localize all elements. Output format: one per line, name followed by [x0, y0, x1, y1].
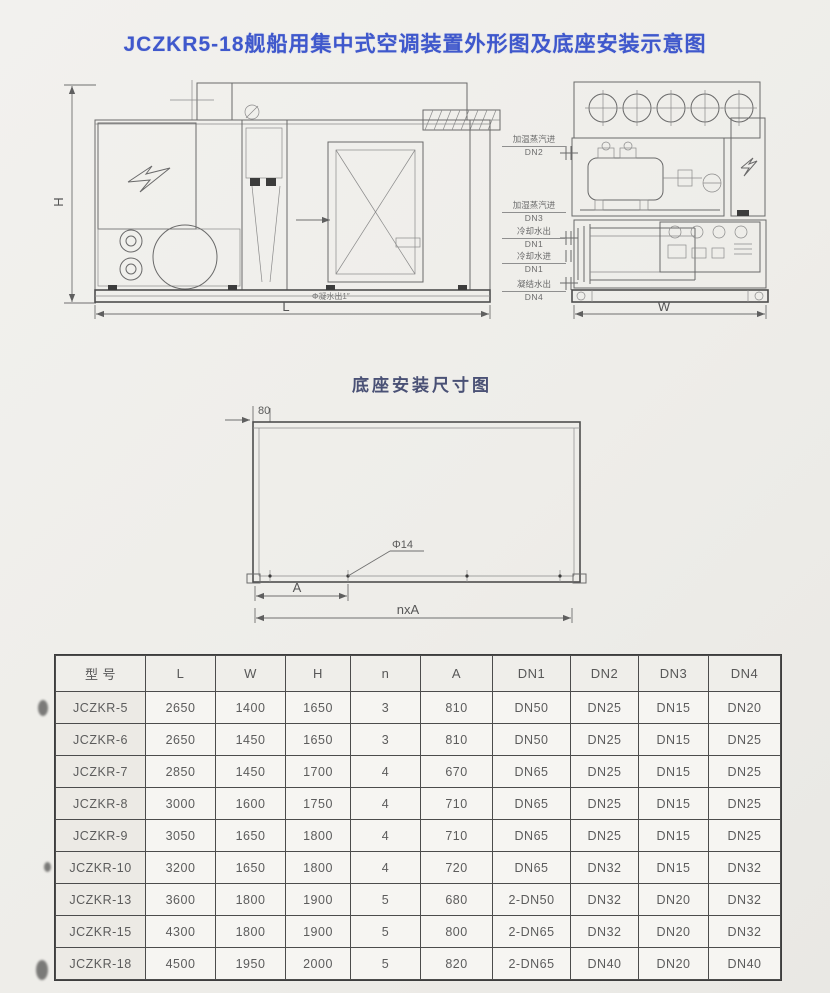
table-row: JCZKR-52650140016503810DN50DN25DN15DN20 — [56, 692, 781, 724]
port-label: 冷却水出DN1 — [502, 226, 566, 250]
table-cell: JCZKR-6 — [56, 724, 146, 756]
dim-w-label: W — [658, 299, 671, 314]
end-view-drawing: W — [560, 82, 768, 319]
side-view-drawing: H — [51, 80, 500, 319]
table-cell: DN15 — [639, 724, 709, 756]
table-cell: 1650 — [286, 724, 351, 756]
dim-l-label: L — [282, 299, 289, 314]
table-cell: DN65 — [493, 820, 571, 852]
table-cell: DN65 — [493, 852, 571, 884]
table-cell: DN65 — [493, 756, 571, 788]
table-cell: DN32 — [571, 852, 639, 884]
table-cell: 670 — [421, 756, 493, 788]
table-cell: DN20 — [639, 916, 709, 948]
table-cell: 4 — [351, 820, 421, 852]
table-cell: 720 — [421, 852, 493, 884]
table-cell: DN50 — [493, 692, 571, 724]
edge-offset-label: 80 — [258, 405, 270, 417]
table-cell: 810 — [421, 724, 493, 756]
table-header-cell: DN1 — [493, 656, 571, 692]
table-header-cell: DN3 — [639, 656, 709, 692]
table-cell: DN32 — [571, 916, 639, 948]
table-cell: 4300 — [146, 916, 216, 948]
table-cell: 1800 — [286, 852, 351, 884]
table-row: JCZKR-1845001950200058202-DN65DN40DN20DN… — [56, 948, 781, 980]
table-cell: DN15 — [639, 756, 709, 788]
hole-label: Φ14 — [392, 539, 413, 551]
table-cell: 1800 — [216, 884, 286, 916]
dim-a-label: A — [293, 580, 302, 595]
table-cell: 1700 — [286, 756, 351, 788]
table-cell: DN40 — [571, 948, 639, 980]
table-cell: JCZKR-10 — [56, 852, 146, 884]
table-cell: DN32 — [709, 852, 781, 884]
port-dn: DN1 — [502, 239, 566, 250]
table-cell: DN15 — [639, 852, 709, 884]
port-dn: DN4 — [502, 292, 566, 303]
table-cell: 710 — [421, 820, 493, 852]
table-cell: DN15 — [639, 788, 709, 820]
drain-label: Φ凝水出1″ — [312, 291, 350, 301]
spec-table: 型 号LWHnADN1DN2DN3DN4 JCZKR-5265014001650… — [55, 655, 781, 980]
spec-table-header-row: 型 号LWHnADN1DN2DN3DN4 — [56, 656, 781, 692]
port-name: 冷却水出 — [502, 226, 566, 239]
table-row: JCZKR-72850145017004670DN65DN25DN15DN25 — [56, 756, 781, 788]
table-cell: DN25 — [571, 820, 639, 852]
table-header-cell: DN4 — [709, 656, 781, 692]
scanned-page: JCZKR5-18舰船用集中式空调装置外形图及底座安装示意图 H — [0, 0, 830, 993]
table-row: JCZKR-83000160017504710DN65DN25DN15DN25 — [56, 788, 781, 820]
table-header-cell: L — [146, 656, 216, 692]
table-cell: 1800 — [216, 916, 286, 948]
table-cell: 3 — [351, 692, 421, 724]
table-row: JCZKR-103200165018004720DN65DN32DN15DN32 — [56, 852, 781, 884]
table-cell: DN25 — [709, 788, 781, 820]
table-cell: 5 — [351, 916, 421, 948]
port-dn: DN2 — [502, 147, 566, 158]
table-cell: 2650 — [146, 724, 216, 756]
base-plate: Φ14 — [247, 422, 586, 583]
port-dn: DN3 — [502, 213, 566, 224]
spec-table-body: JCZKR-52650140016503810DN50DN25DN15DN20J… — [56, 692, 781, 980]
outline-drawing: H — [0, 70, 830, 340]
table-row: JCZKR-1336001800190056802-DN50DN32DN20DN… — [56, 884, 781, 916]
dim-nxa: nxA — [255, 602, 572, 623]
table-cell: 710 — [421, 788, 493, 820]
port-dn: DN1 — [502, 264, 566, 275]
table-cell: 2850 — [146, 756, 216, 788]
table-cell: 3000 — [146, 788, 216, 820]
port-label: 凝结水出DN4 — [502, 279, 566, 303]
table-cell: JCZKR-5 — [56, 692, 146, 724]
dim-edge-offset: 80 — [225, 405, 270, 424]
table-cell: 5 — [351, 948, 421, 980]
table-cell: DN20 — [709, 692, 781, 724]
table-cell: DN50 — [493, 724, 571, 756]
table-cell: 2-DN65 — [493, 916, 571, 948]
table-cell: 1450 — [216, 724, 286, 756]
port-name: 加湿蒸汽进 — [502, 200, 566, 213]
table-cell: DN25 — [709, 724, 781, 756]
table-cell: 1750 — [286, 788, 351, 820]
table-cell: DN32 — [709, 884, 781, 916]
table-cell: DN20 — [639, 948, 709, 980]
table-cell: 2000 — [286, 948, 351, 980]
port-label: 冷却水进DN1 — [502, 251, 566, 275]
table-cell: 1400 — [216, 692, 286, 724]
port-name: 冷却水进 — [502, 251, 566, 264]
base-diagram-caption: 底座安装尺寸图 — [352, 371, 492, 396]
scan-artifact — [38, 700, 48, 716]
table-cell: 5 — [351, 884, 421, 916]
port-label: 加温蒸汽进DN2 — [502, 134, 566, 158]
table-cell: 3 — [351, 724, 421, 756]
table-cell: DN65 — [493, 788, 571, 820]
table-cell: 810 — [421, 692, 493, 724]
table-cell: 1950 — [216, 948, 286, 980]
dim-a: A — [255, 580, 348, 601]
table-header-cell: W — [216, 656, 286, 692]
table-cell: DN32 — [709, 916, 781, 948]
table-cell: JCZKR-9 — [56, 820, 146, 852]
table-cell: DN15 — [639, 820, 709, 852]
dim-nxa-label: nxA — [397, 602, 420, 617]
table-cell: DN25 — [571, 788, 639, 820]
scan-artifact — [36, 960, 48, 980]
crosshair-mark — [170, 80, 214, 120]
compressor — [580, 142, 721, 210]
table-cell: 2650 — [146, 692, 216, 724]
table-cell: 1600 — [216, 788, 286, 820]
table-cell: JCZKR-7 — [56, 756, 146, 788]
table-row: JCZKR-93050165018004710DN65DN25DN15DN25 — [56, 820, 781, 852]
table-header-cell: H — [286, 656, 351, 692]
table-cell: 2-DN50 — [493, 884, 571, 916]
table-cell: JCZKR-18 — [56, 948, 146, 980]
table-header-cell: n — [351, 656, 421, 692]
table-cell: 1900 — [286, 884, 351, 916]
heat-exchanger-drum — [578, 224, 695, 284]
table-cell: DN15 — [639, 692, 709, 724]
lightning-icon — [128, 166, 170, 192]
table-header-cell: 型 号 — [56, 656, 146, 692]
port-name: 凝结水出 — [502, 279, 566, 292]
table-cell: 4500 — [146, 948, 216, 980]
table-row: JCZKR-62650145016503810DN50DN25DN15DN25 — [56, 724, 781, 756]
table-cell: 800 — [421, 916, 493, 948]
table-header-cell: DN2 — [571, 656, 639, 692]
table-cell: 4 — [351, 756, 421, 788]
hole-callout: Φ14 — [348, 539, 424, 576]
table-header-cell: A — [421, 656, 493, 692]
table-row: JCZKR-1543001800190058002-DN65DN32DN20DN… — [56, 916, 781, 948]
table-cell: 820 — [421, 948, 493, 980]
table-cell: 1800 — [286, 820, 351, 852]
table-cell: DN25 — [709, 820, 781, 852]
table-cell: 680 — [421, 884, 493, 916]
dim-h-label: H — [51, 197, 66, 206]
no-step-icon — [245, 105, 259, 119]
table-cell: 3600 — [146, 884, 216, 916]
page-title: JCZKR5-18舰船用集中式空调装置外形图及底座安装示意图 — [0, 28, 830, 58]
table-cell: 1650 — [286, 692, 351, 724]
table-cell: 4 — [351, 788, 421, 820]
scan-artifact — [44, 862, 51, 872]
control-panel — [660, 222, 760, 272]
dim-h: H — [51, 85, 96, 303]
table-cell: DN25 — [709, 756, 781, 788]
table-cell: 2-DN65 — [493, 948, 571, 980]
lightning-icon — [741, 158, 757, 176]
table-cell: 1900 — [286, 916, 351, 948]
table-cell: 1450 — [216, 756, 286, 788]
table-cell: DN25 — [571, 724, 639, 756]
table-cell: 1650 — [216, 820, 286, 852]
table-cell: 3200 — [146, 852, 216, 884]
table-cell: 1650 — [216, 852, 286, 884]
table-cell: JCZKR-8 — [56, 788, 146, 820]
port-name: 加温蒸汽进 — [502, 134, 566, 147]
table-cell: DN32 — [571, 884, 639, 916]
table-cell: DN25 — [571, 692, 639, 724]
table-cell: JCZKR-13 — [56, 884, 146, 916]
table-cell: DN40 — [709, 948, 781, 980]
table-cell: DN20 — [639, 884, 709, 916]
table-cell: JCZKR-15 — [56, 916, 146, 948]
table-cell: DN25 — [571, 756, 639, 788]
table-cell: 3050 — [146, 820, 216, 852]
table-cell: 4 — [351, 852, 421, 884]
port-label: 加湿蒸汽进DN3 — [502, 200, 566, 224]
base-installation-diagram: 80 Φ14 — [0, 395, 830, 645]
